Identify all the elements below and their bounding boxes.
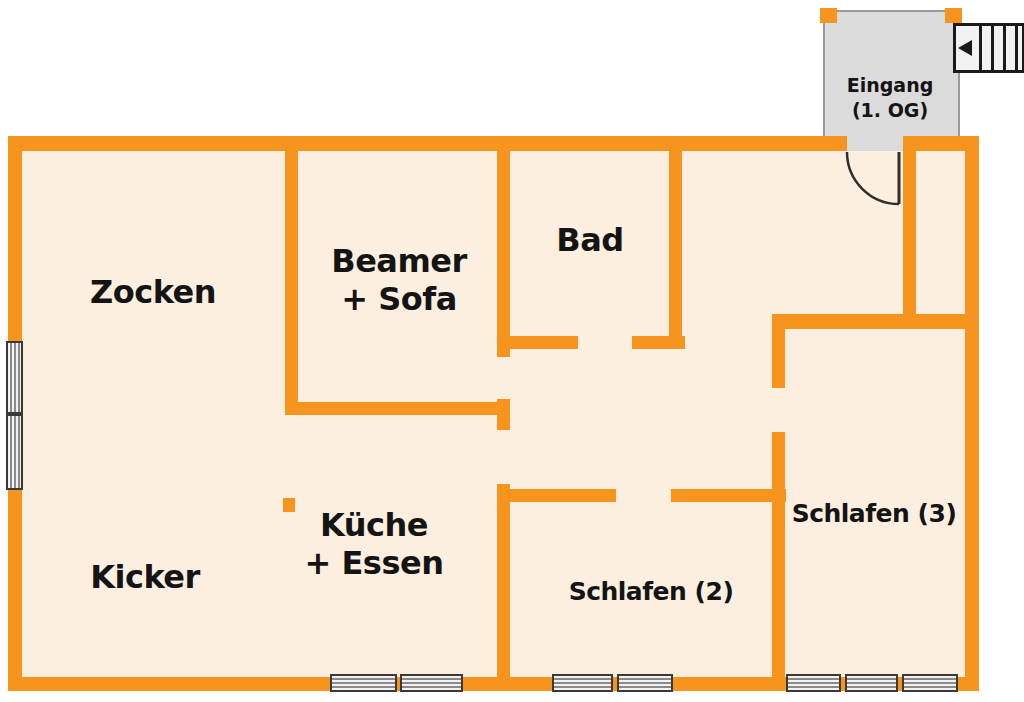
room-label-kicker: Kicker bbox=[90, 558, 200, 596]
room-label-schlafen-2: Schlafen (2) bbox=[569, 577, 734, 607]
window bbox=[6, 341, 23, 414]
room-label-eingang-line2: (1. OG) bbox=[847, 98, 934, 123]
room-label-eingang: Eingang (1. OG) bbox=[847, 73, 934, 123]
window bbox=[617, 674, 673, 692]
stairs-steps bbox=[970, 26, 1022, 70]
window bbox=[330, 674, 397, 692]
wall-bad-bottom-left bbox=[497, 336, 578, 349]
room-label-zocken: Zocken bbox=[90, 273, 216, 311]
room-label-kueche-essen: Küche + Essen bbox=[305, 506, 444, 582]
wall-outer-top-left bbox=[8, 136, 847, 151]
floorplan-canvas: Zocken Beamer + Sofa Bad Kicker Küche + … bbox=[0, 0, 1024, 702]
wall-kitchen-endcap bbox=[497, 399, 510, 430]
wall-outer-right bbox=[965, 136, 979, 691]
room-label-beamer-sofa-line1: Beamer bbox=[331, 242, 467, 280]
room-label-kueche-essen-line2: + Essen bbox=[305, 544, 444, 582]
window bbox=[786, 674, 841, 692]
wall-schlafen2-top-right bbox=[671, 489, 786, 502]
window bbox=[845, 674, 898, 692]
room-label-bad: Bad bbox=[556, 221, 623, 259]
wall-schlafen3-top bbox=[772, 314, 979, 329]
wall-schlafen3-left-upper bbox=[772, 314, 785, 388]
stairs-direction-arrow-icon bbox=[958, 40, 972, 56]
window bbox=[6, 414, 23, 490]
room-label-beamer-sofa-line2: + Sofa bbox=[331, 280, 467, 318]
window bbox=[552, 674, 613, 692]
window bbox=[902, 674, 958, 692]
room-label-beamer-sofa: Beamer + Sofa bbox=[331, 242, 467, 318]
entrance-corner-bracket-left bbox=[820, 8, 837, 23]
wall-schlafen2-top-left bbox=[497, 489, 616, 502]
room-label-kueche-essen-line1: Küche bbox=[305, 506, 444, 544]
entrance-threshold bbox=[847, 136, 903, 151]
entrance-corner-bracket-right bbox=[945, 8, 962, 23]
kitchen-pillar bbox=[283, 498, 295, 512]
wall-bad-right bbox=[669, 151, 682, 349]
wall-beamer-bottom bbox=[285, 402, 510, 415]
room-label-eingang-line1: Eingang bbox=[847, 73, 934, 98]
wall-schlafen3-left-lower bbox=[772, 432, 785, 691]
wall-entry-divider bbox=[903, 151, 916, 317]
wall-beamer-left bbox=[285, 151, 298, 415]
staircase-icon bbox=[953, 23, 1024, 73]
room-label-schlafen-3: Schlafen (3) bbox=[792, 499, 957, 529]
window bbox=[400, 674, 463, 692]
wall-schlafen2-left bbox=[497, 484, 510, 691]
wall-bad-left bbox=[497, 151, 510, 357]
